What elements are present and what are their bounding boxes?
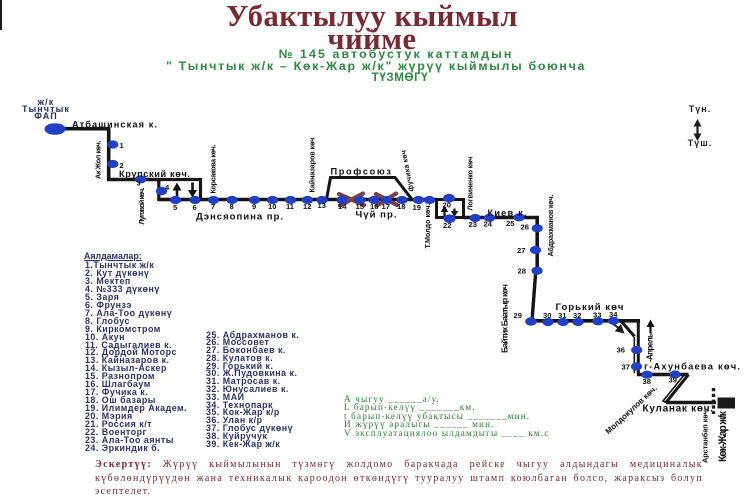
svg-text:10: 10	[268, 202, 276, 211]
svg-text:Т.Молдо көч.: Т.Молдо көч.	[423, 204, 432, 249]
svg-text:11: 11	[286, 202, 295, 211]
svg-text:Киев к.: Киев к.	[488, 208, 527, 218]
svg-text:14: 14	[338, 202, 347, 211]
svg-text:Көк-Жар ж/к: Көк-Жар ж/к	[717, 410, 729, 462]
svg-text:Луговой көч.: Луговой көч.	[137, 188, 146, 225]
svg-text:18: 18	[397, 202, 405, 211]
svg-text:Атбашинская к.: Атбашинская к.	[72, 120, 157, 130]
svg-text:24: 24	[484, 220, 493, 229]
svg-text:38: 38	[643, 377, 651, 386]
svg-text:3: 3	[137, 179, 141, 188]
svg-text:Профсоюз: Профсоюз	[331, 167, 392, 177]
svg-text:Байтик Баатыр көч: Байтик Баатыр көч	[500, 284, 510, 353]
svg-text:37: 37	[622, 363, 630, 372]
svg-text:Кайназаров көч: Кайназаров көч	[308, 138, 317, 193]
svg-text:12: 12	[303, 202, 311, 211]
svg-text:8: 8	[230, 202, 234, 211]
svg-text:Крупский көч.: Крупский көч.	[119, 169, 190, 179]
svg-text:7: 7	[211, 202, 215, 211]
svg-text:Горький көч: Горький көч	[556, 302, 624, 313]
svg-text:1: 1	[120, 141, 125, 150]
svg-text:Арстанбап көч: Арстанбап көч	[701, 410, 710, 463]
svg-text:Дэнсяопина пр.: Дэнсяопина пр.	[196, 212, 283, 223]
svg-text:19: 19	[413, 203, 421, 212]
svg-text:28: 28	[518, 267, 526, 276]
svg-text:39: 39	[669, 376, 677, 385]
svg-text:25: 25	[506, 219, 515, 228]
svg-text:-Апрель: -Апрель	[646, 333, 655, 362]
svg-text:Корсакова көч.: Корсакова көч.	[209, 145, 218, 194]
svg-text:26: 26	[521, 223, 529, 232]
svg-text:Абдрахманов көч.: Абдрахманов көч.	[546, 195, 555, 257]
svg-text:27: 27	[517, 246, 525, 255]
svg-text:36: 36	[617, 346, 625, 355]
svg-text:29: 29	[514, 311, 522, 320]
svg-text:Логвиненко көч: Логвиненко көч	[466, 157, 475, 211]
svg-text:Ак Жол көч.: Ак Жол көч.	[94, 141, 103, 180]
svg-text:30: 30	[543, 311, 551, 320]
svg-text:20: 20	[443, 201, 451, 210]
svg-text:22: 22	[443, 221, 451, 230]
svg-text:13: 13	[318, 201, 326, 210]
svg-text:4: 4	[165, 183, 170, 192]
svg-text:9: 9	[252, 202, 256, 211]
svg-text:г-Ахунбаева көч.: г-Ахунбаева көч.	[644, 361, 740, 372]
svg-text:5: 5	[173, 203, 178, 212]
svg-text:Чүй пр.: Чүй пр.	[356, 209, 397, 220]
svg-text:23: 23	[469, 220, 477, 229]
